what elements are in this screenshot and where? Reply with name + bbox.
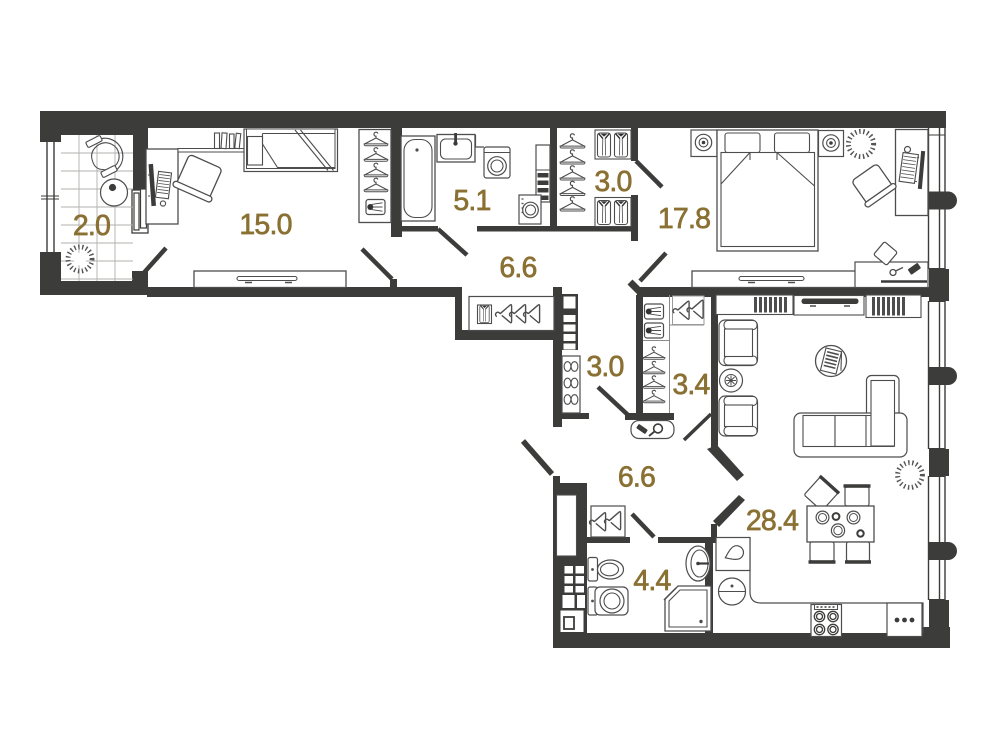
svg-text:28.4: 28.4 [746,505,799,537]
svg-text:15.0: 15.0 [239,209,291,241]
svg-text:5.1: 5.1 [453,185,490,217]
svg-text:6.6: 6.6 [618,462,655,494]
svg-text:3.0: 3.0 [586,351,623,383]
svg-text:17.8: 17.8 [658,203,710,235]
svg-text:2.0: 2.0 [73,210,110,242]
svg-text:3.4: 3.4 [672,369,710,401]
svg-text:6.6: 6.6 [499,252,536,284]
svg-text:3.0: 3.0 [594,166,631,198]
svg-text:4.4: 4.4 [633,565,671,597]
